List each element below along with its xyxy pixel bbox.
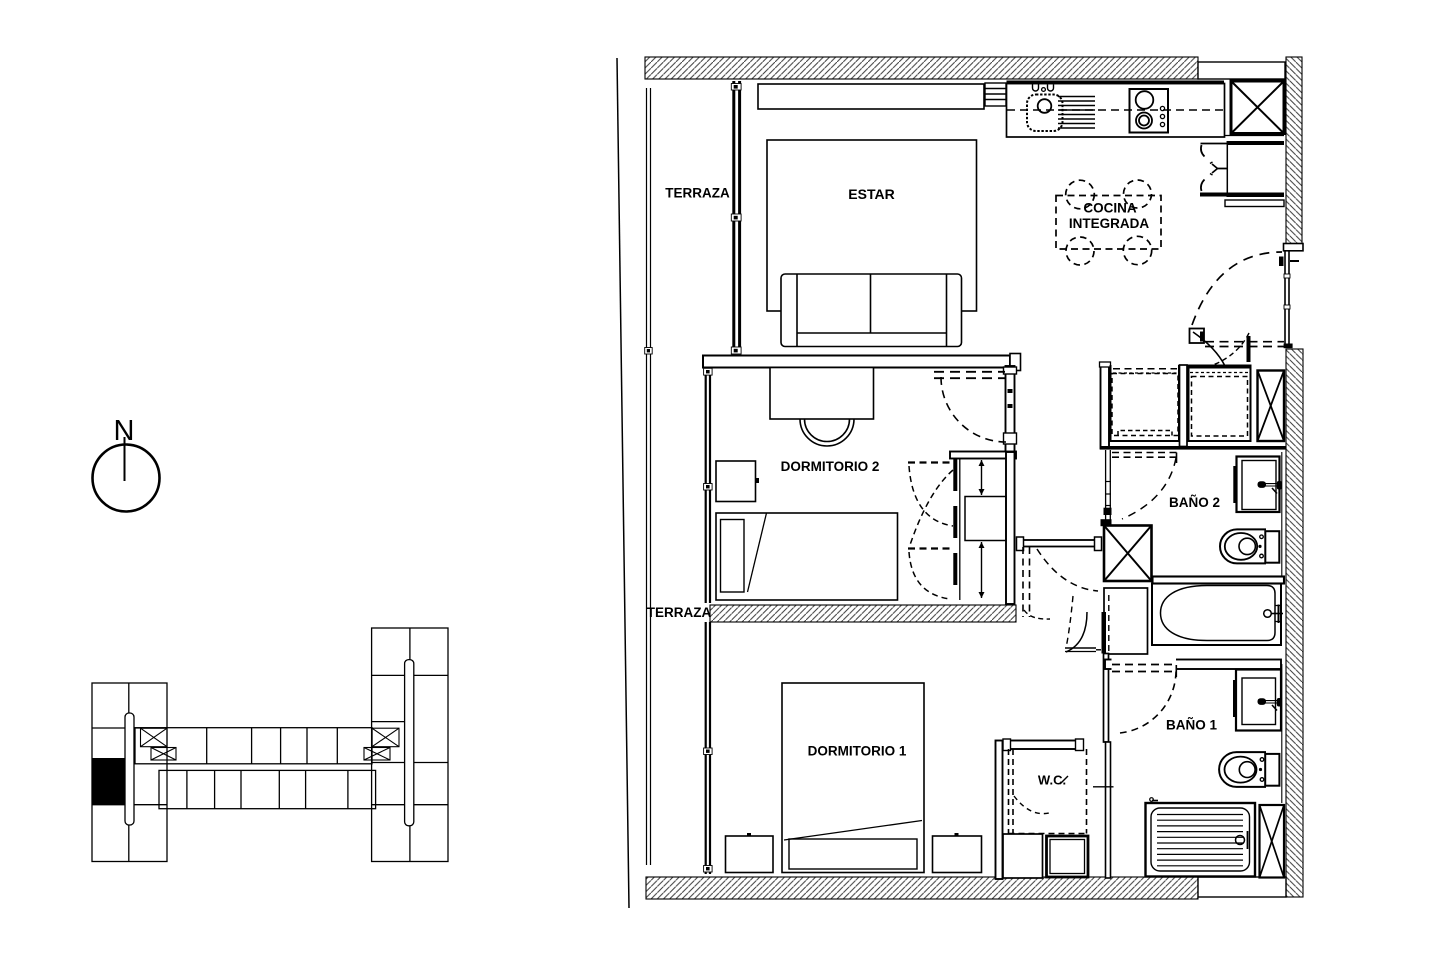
- svg-text:COCINA: COCINA: [1083, 201, 1136, 216]
- svg-text:BAÑO 1: BAÑO 1: [1166, 718, 1217, 733]
- svg-text:TERRAZA: TERRAZA: [665, 186, 730, 201]
- svg-text:W.C.: W.C.: [1038, 773, 1066, 788]
- svg-text:N: N: [114, 415, 135, 447]
- svg-text:DORMITORIO 1: DORMITORIO 1: [808, 744, 907, 759]
- svg-text:TERRAZA: TERRAZA: [647, 605, 712, 620]
- svg-text:INTEGRADA: INTEGRADA: [1069, 216, 1149, 231]
- svg-text:BAÑO 2: BAÑO 2: [1169, 495, 1220, 510]
- svg-text:DORMITORIO 2: DORMITORIO 2: [781, 459, 880, 474]
- svg-text:ESTAR: ESTAR: [848, 186, 894, 202]
